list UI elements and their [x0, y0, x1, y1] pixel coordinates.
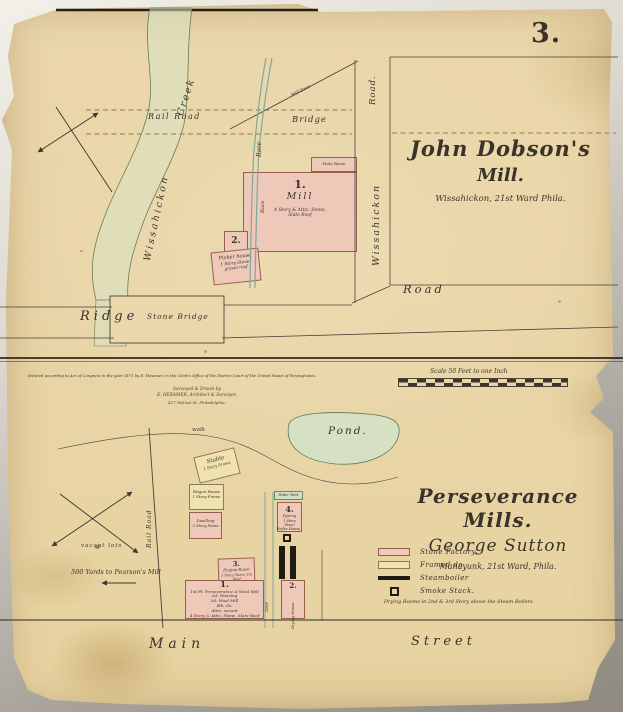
mill-race-lines — [250, 58, 272, 288]
scanned-atlas-sheet: Mule Room 1. Mill 4 Story & Attic, Stone… — [0, 0, 623, 712]
plate-number: 3. — [531, 20, 561, 47]
steamboiler-swatch — [378, 576, 410, 580]
walk-label: walk — [192, 428, 205, 434]
drying-rooms-note: Drying Rooms in 2nd & 3rd Story above th… — [384, 600, 534, 605]
map-title: John Dobson's — [393, 136, 608, 161]
compass-rose-top — [38, 107, 112, 192]
race-label: Race — [257, 142, 263, 157]
legend-label: Smoke Stack. — [420, 587, 474, 595]
smoke-stack-swatch — [390, 587, 399, 596]
wissahickon-road-label: Wissahickon — [372, 184, 382, 266]
copyright-line: Entered according to Act of Congress in … — [28, 374, 316, 378]
legend: Stone Factory Framed do. Steamboiler Smo… — [378, 546, 476, 598]
legend-row: Framed do. — [378, 559, 476, 571]
framed-swatch — [378, 561, 410, 569]
race-label: race — [266, 602, 271, 612]
pond-shape — [288, 413, 399, 465]
vacant-lots-label: vacant lots — [81, 544, 122, 550]
legend-label: Steamboiler — [420, 574, 469, 582]
map-subtitle: Wissahickon, 21st Ward Phila. — [393, 194, 608, 204]
distance-note-label: 500 Yards to Pearson's Mill — [71, 569, 161, 576]
section-divider-rule — [0, 358, 623, 362]
surveyor-credit-block: Surveyed & Drawn by E. HEXAMER, Architec… — [133, 387, 261, 406]
scale-bar — [398, 378, 568, 387]
legend-row: Stone Factory — [378, 546, 476, 558]
road-vertical-label: Road. — [369, 75, 378, 105]
map-linework — [0, 0, 623, 712]
rail-road-label: Rail Road — [148, 113, 201, 121]
surveyor-line: 427 Walnut St. Philadelphia. — [133, 400, 261, 406]
scale-label: Scale 50 Feet to one Inch — [430, 369, 508, 375]
top-map-title-block: John Dobson's Mill. Wissahickon, 21st Wa… — [393, 136, 608, 204]
legend-row: Steamboiler — [378, 572, 476, 584]
stone-bridge-label: Stone Bridge — [147, 313, 209, 321]
stone-factory-swatch — [378, 548, 410, 556]
map-title: Mill. — [393, 165, 608, 186]
legend-label: Stone Factory — [420, 548, 476, 556]
street-label: Street — [411, 635, 476, 648]
rail-road-label: Rail Road — [147, 509, 153, 548]
map-title: Perseverance Mills. — [383, 484, 613, 532]
race-label: Race — [261, 200, 266, 213]
wissahickon-creek — [92, 8, 192, 346]
legend-row: Smoke Stack. — [378, 585, 476, 597]
boiler-house-label: Boiler House — [277, 528, 300, 532]
pond-label: Pond. — [328, 426, 368, 437]
road-label: Road — [403, 284, 445, 296]
bridge-label: Bridge — [292, 116, 327, 125]
legend-label: Framed do. — [420, 561, 466, 569]
ridge-label: Ridge — [80, 310, 138, 323]
smoke-stack-swatch-wrap — [378, 587, 410, 596]
main-street-label: Main — [149, 637, 205, 651]
